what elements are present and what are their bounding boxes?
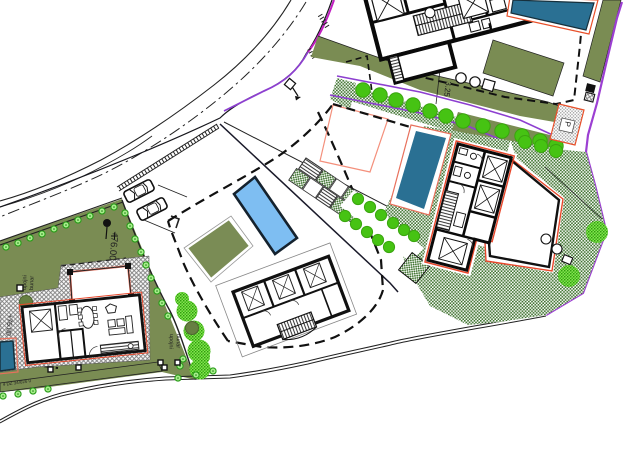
svg-text:upojni: upojni — [22, 275, 29, 290]
svg-text:bunar: bunar — [175, 334, 181, 348]
svg-text:upojni: upojni — [167, 334, 174, 349]
svg-text:bunar: bunar — [29, 276, 35, 290]
